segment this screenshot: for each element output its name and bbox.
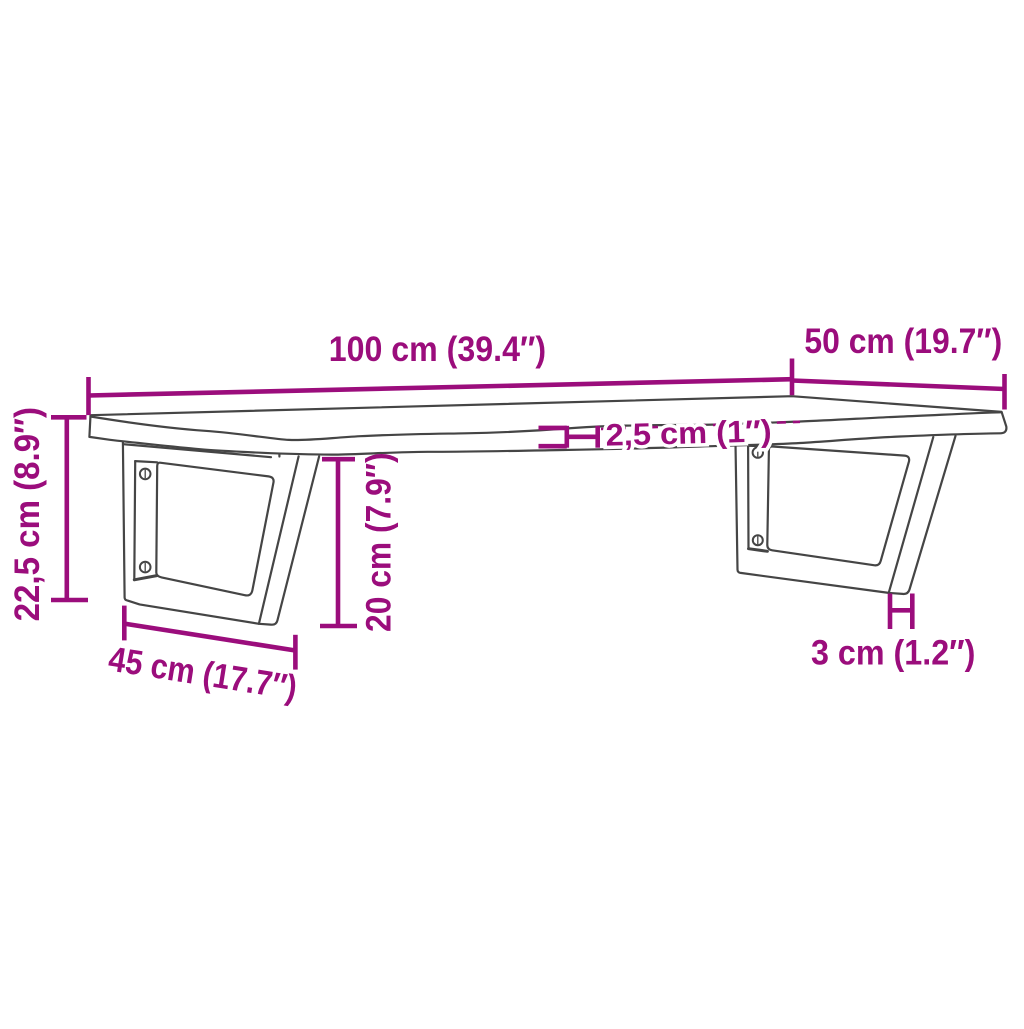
svg-text:2,5 cm (1″): 2,5 cm (1″)	[605, 413, 772, 452]
svg-text:22,5 cm (8.9″): 22,5 cm (8.9″)	[8, 407, 47, 621]
svg-text:50 cm (19.7″): 50 cm (19.7″)	[804, 322, 1002, 361]
svg-text:100 cm (39.4″): 100 cm (39.4″)	[329, 330, 546, 369]
svg-text:20 cm (7.9″): 20 cm (7.9″)	[360, 452, 399, 632]
svg-text:3 cm (1.2″): 3 cm (1.2″)	[811, 633, 975, 672]
